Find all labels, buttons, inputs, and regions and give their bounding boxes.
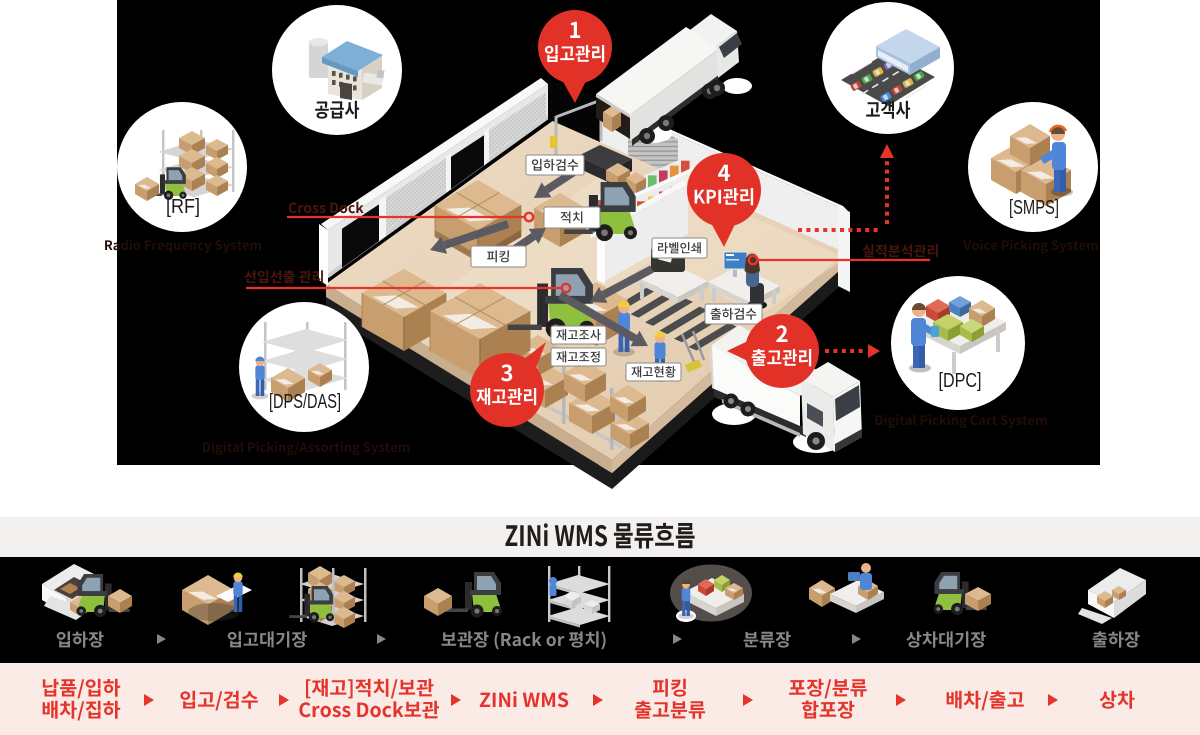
svg-text:[SMPS]: [SMPS] (1009, 197, 1059, 219)
svg-text:[DPS/DAS]: [DPS/DAS] (269, 391, 341, 413)
svg-text:[RF]: [RF] (166, 196, 200, 218)
svg-text:[DPC]: [DPC] (939, 370, 982, 392)
